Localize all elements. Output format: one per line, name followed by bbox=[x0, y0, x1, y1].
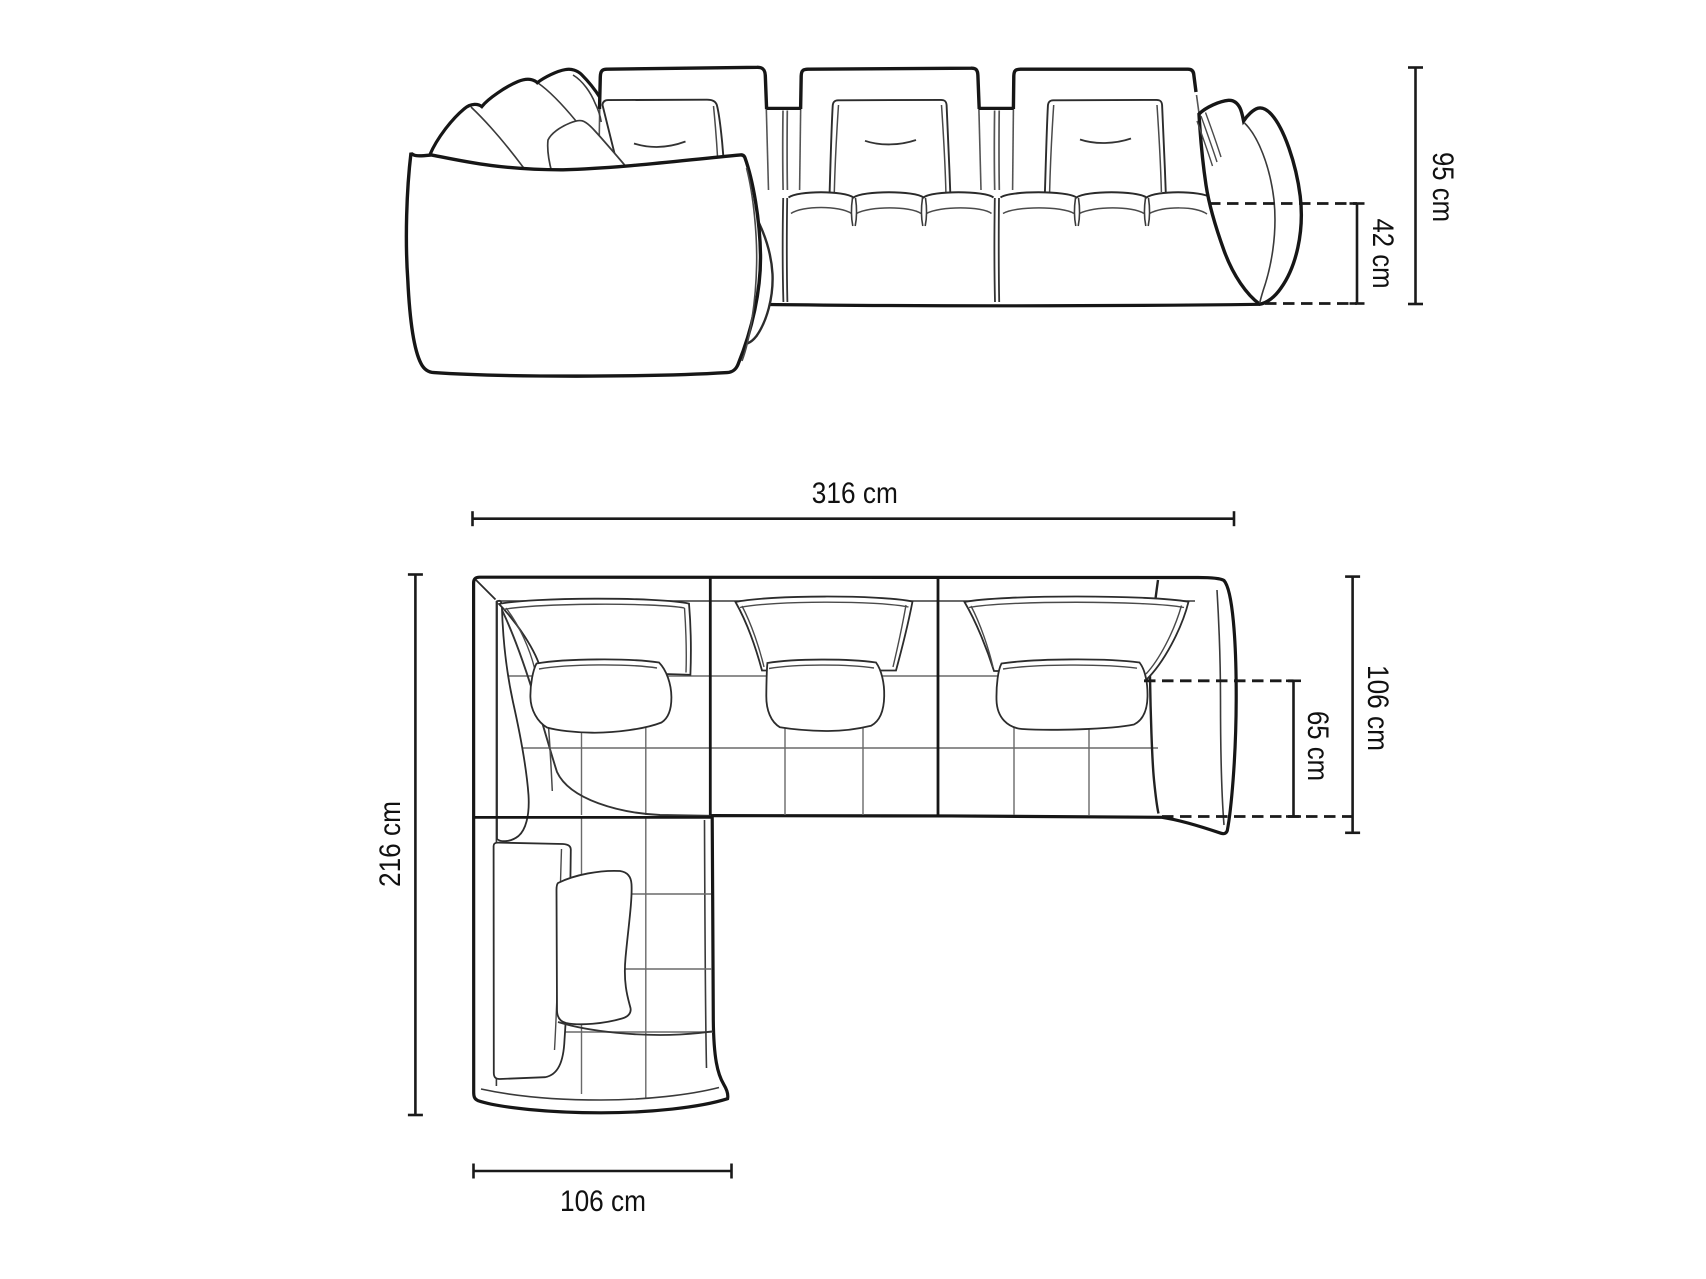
svg-text:106 cm: 106 cm bbox=[1361, 665, 1394, 751]
svg-text:216 cm: 216 cm bbox=[374, 801, 407, 887]
svg-text:106 cm: 106 cm bbox=[560, 1185, 646, 1218]
svg-text:65 cm: 65 cm bbox=[1301, 711, 1334, 781]
svg-text:42 cm: 42 cm bbox=[1366, 219, 1399, 289]
svg-text:316 cm: 316 cm bbox=[812, 477, 898, 510]
svg-text:95 cm: 95 cm bbox=[1426, 152, 1459, 222]
